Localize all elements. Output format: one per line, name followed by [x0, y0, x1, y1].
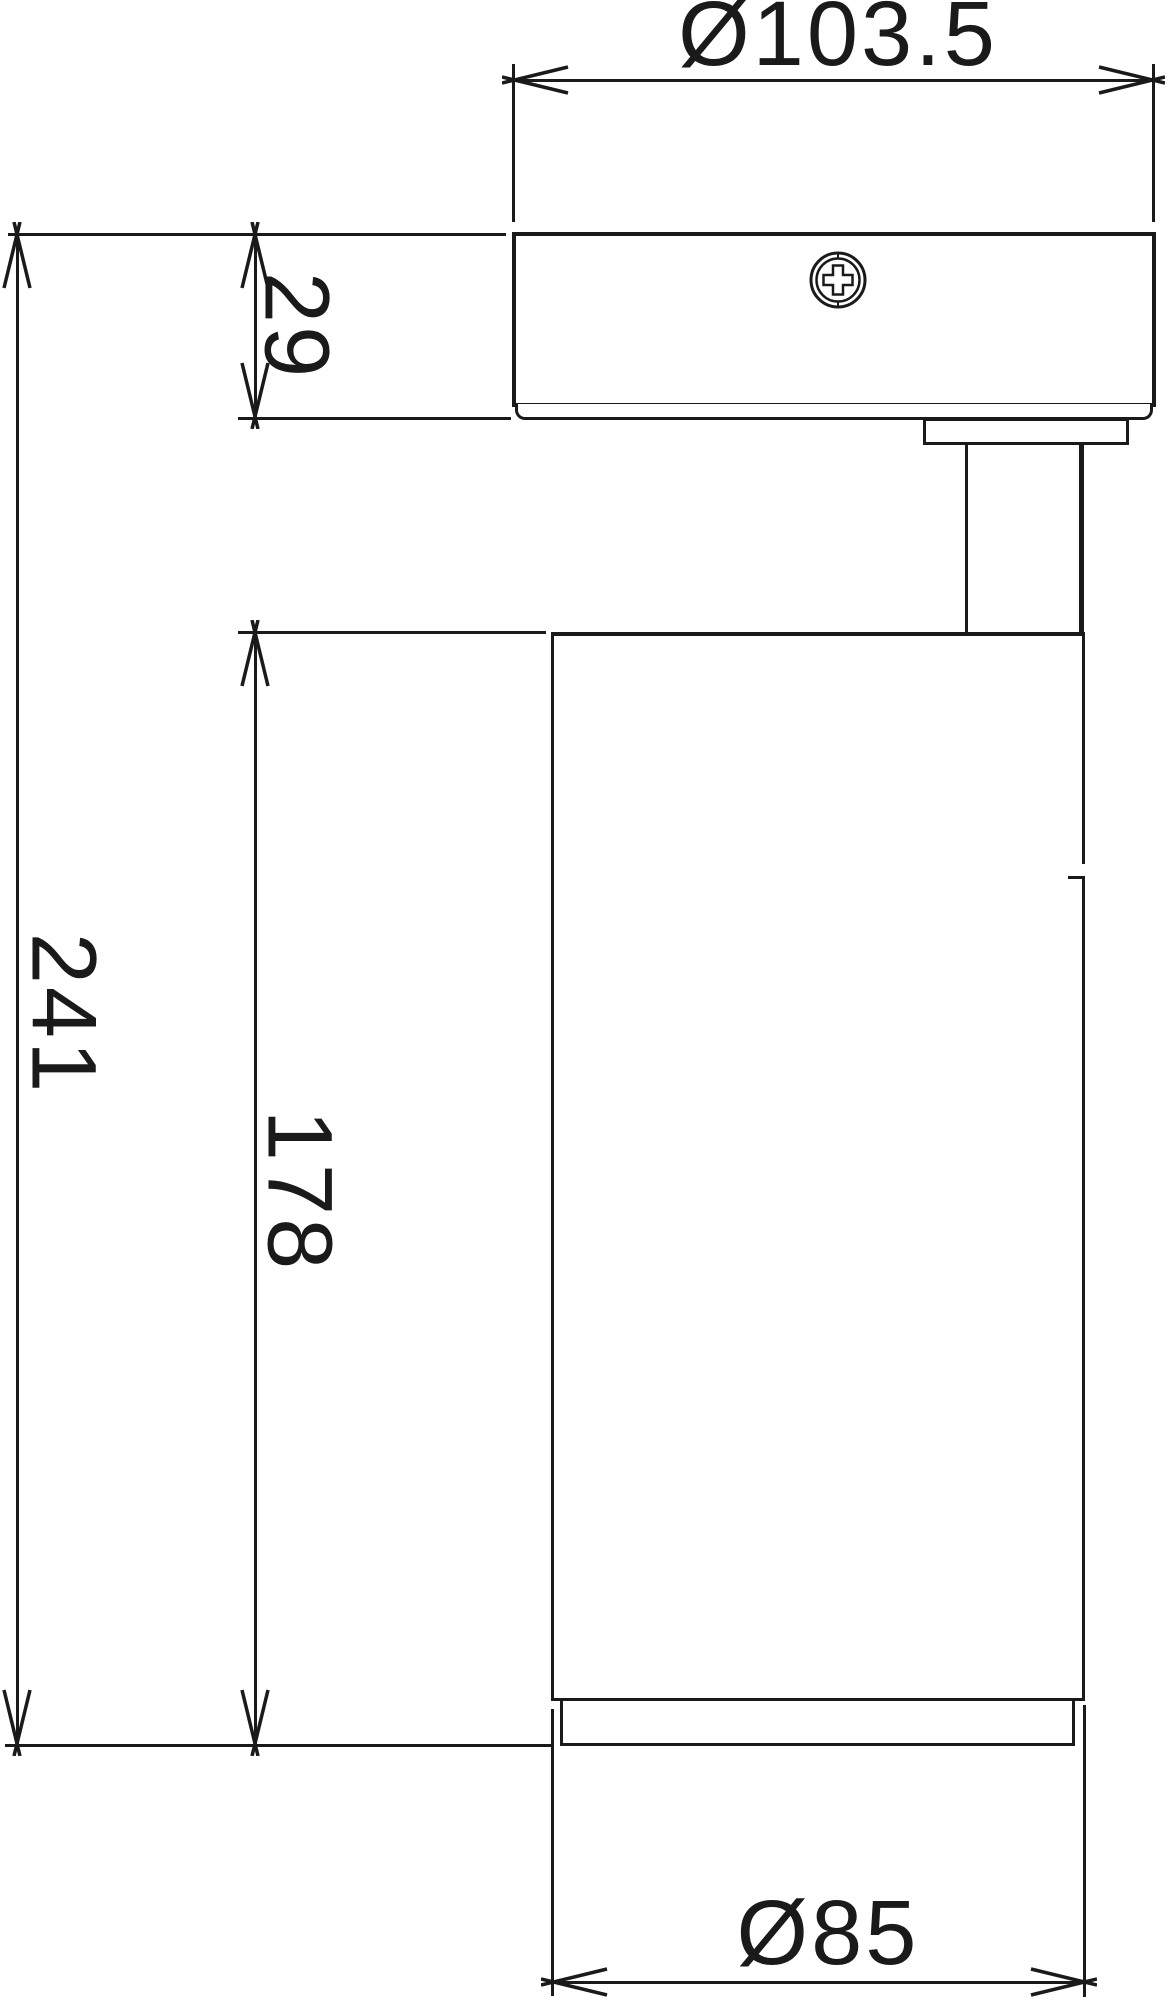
dim-label-head-diameter: Ø85: [528, 1899, 1128, 1967]
head-joint-gap: [1079, 864, 1086, 876]
arrow-up-icon: [237, 620, 273, 692]
ref-line-head-top: [238, 631, 546, 634]
arrow-down-icon: [237, 1684, 273, 1756]
arrow-up-icon: [0, 222, 35, 294]
arrow-right-icon: [1025, 1964, 1097, 2000]
head-joint-tick: [1068, 876, 1085, 879]
dimension-drawing: Ø103.5 29 241 178 Ø85: [0, 0, 1167, 2000]
front-bezel-outline: [560, 1701, 1075, 1746]
mount-adapter-block: [923, 418, 1129, 445]
ref-line-canopy-bottom: [238, 417, 511, 420]
stem-outline: [965, 445, 1084, 634]
arrow-down-icon: [0, 1684, 35, 1756]
arrow-left-icon: [541, 1964, 613, 2000]
ref-line-overall-bottom: [5, 1744, 551, 1747]
lamp-head-outline: [551, 632, 1085, 1701]
dim-label-canopy-diameter: Ø103.5: [538, 0, 1138, 68]
screw-head-icon: [806, 248, 870, 312]
